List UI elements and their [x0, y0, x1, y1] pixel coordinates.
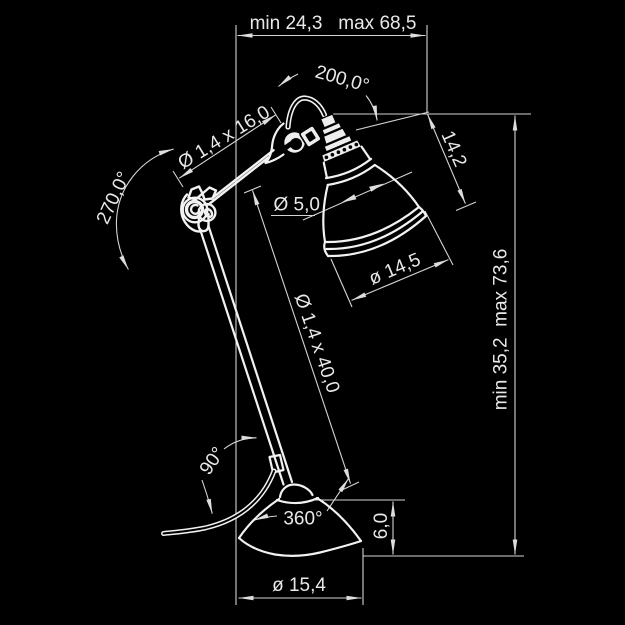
svg-text:360°: 360° — [283, 509, 322, 530]
svg-text:min 24,3 max 68,5: min 24,3 max 68,5 — [250, 13, 417, 34]
svg-text:Ø 5,0: Ø 5,0 — [274, 195, 320, 216]
svg-text:min 35,2 max 73,6: min 35,2 max 73,6 — [491, 249, 512, 411]
svg-text:6,0: 6,0 — [371, 513, 392, 539]
svg-text:ø 15,4: ø 15,4 — [272, 575, 326, 596]
